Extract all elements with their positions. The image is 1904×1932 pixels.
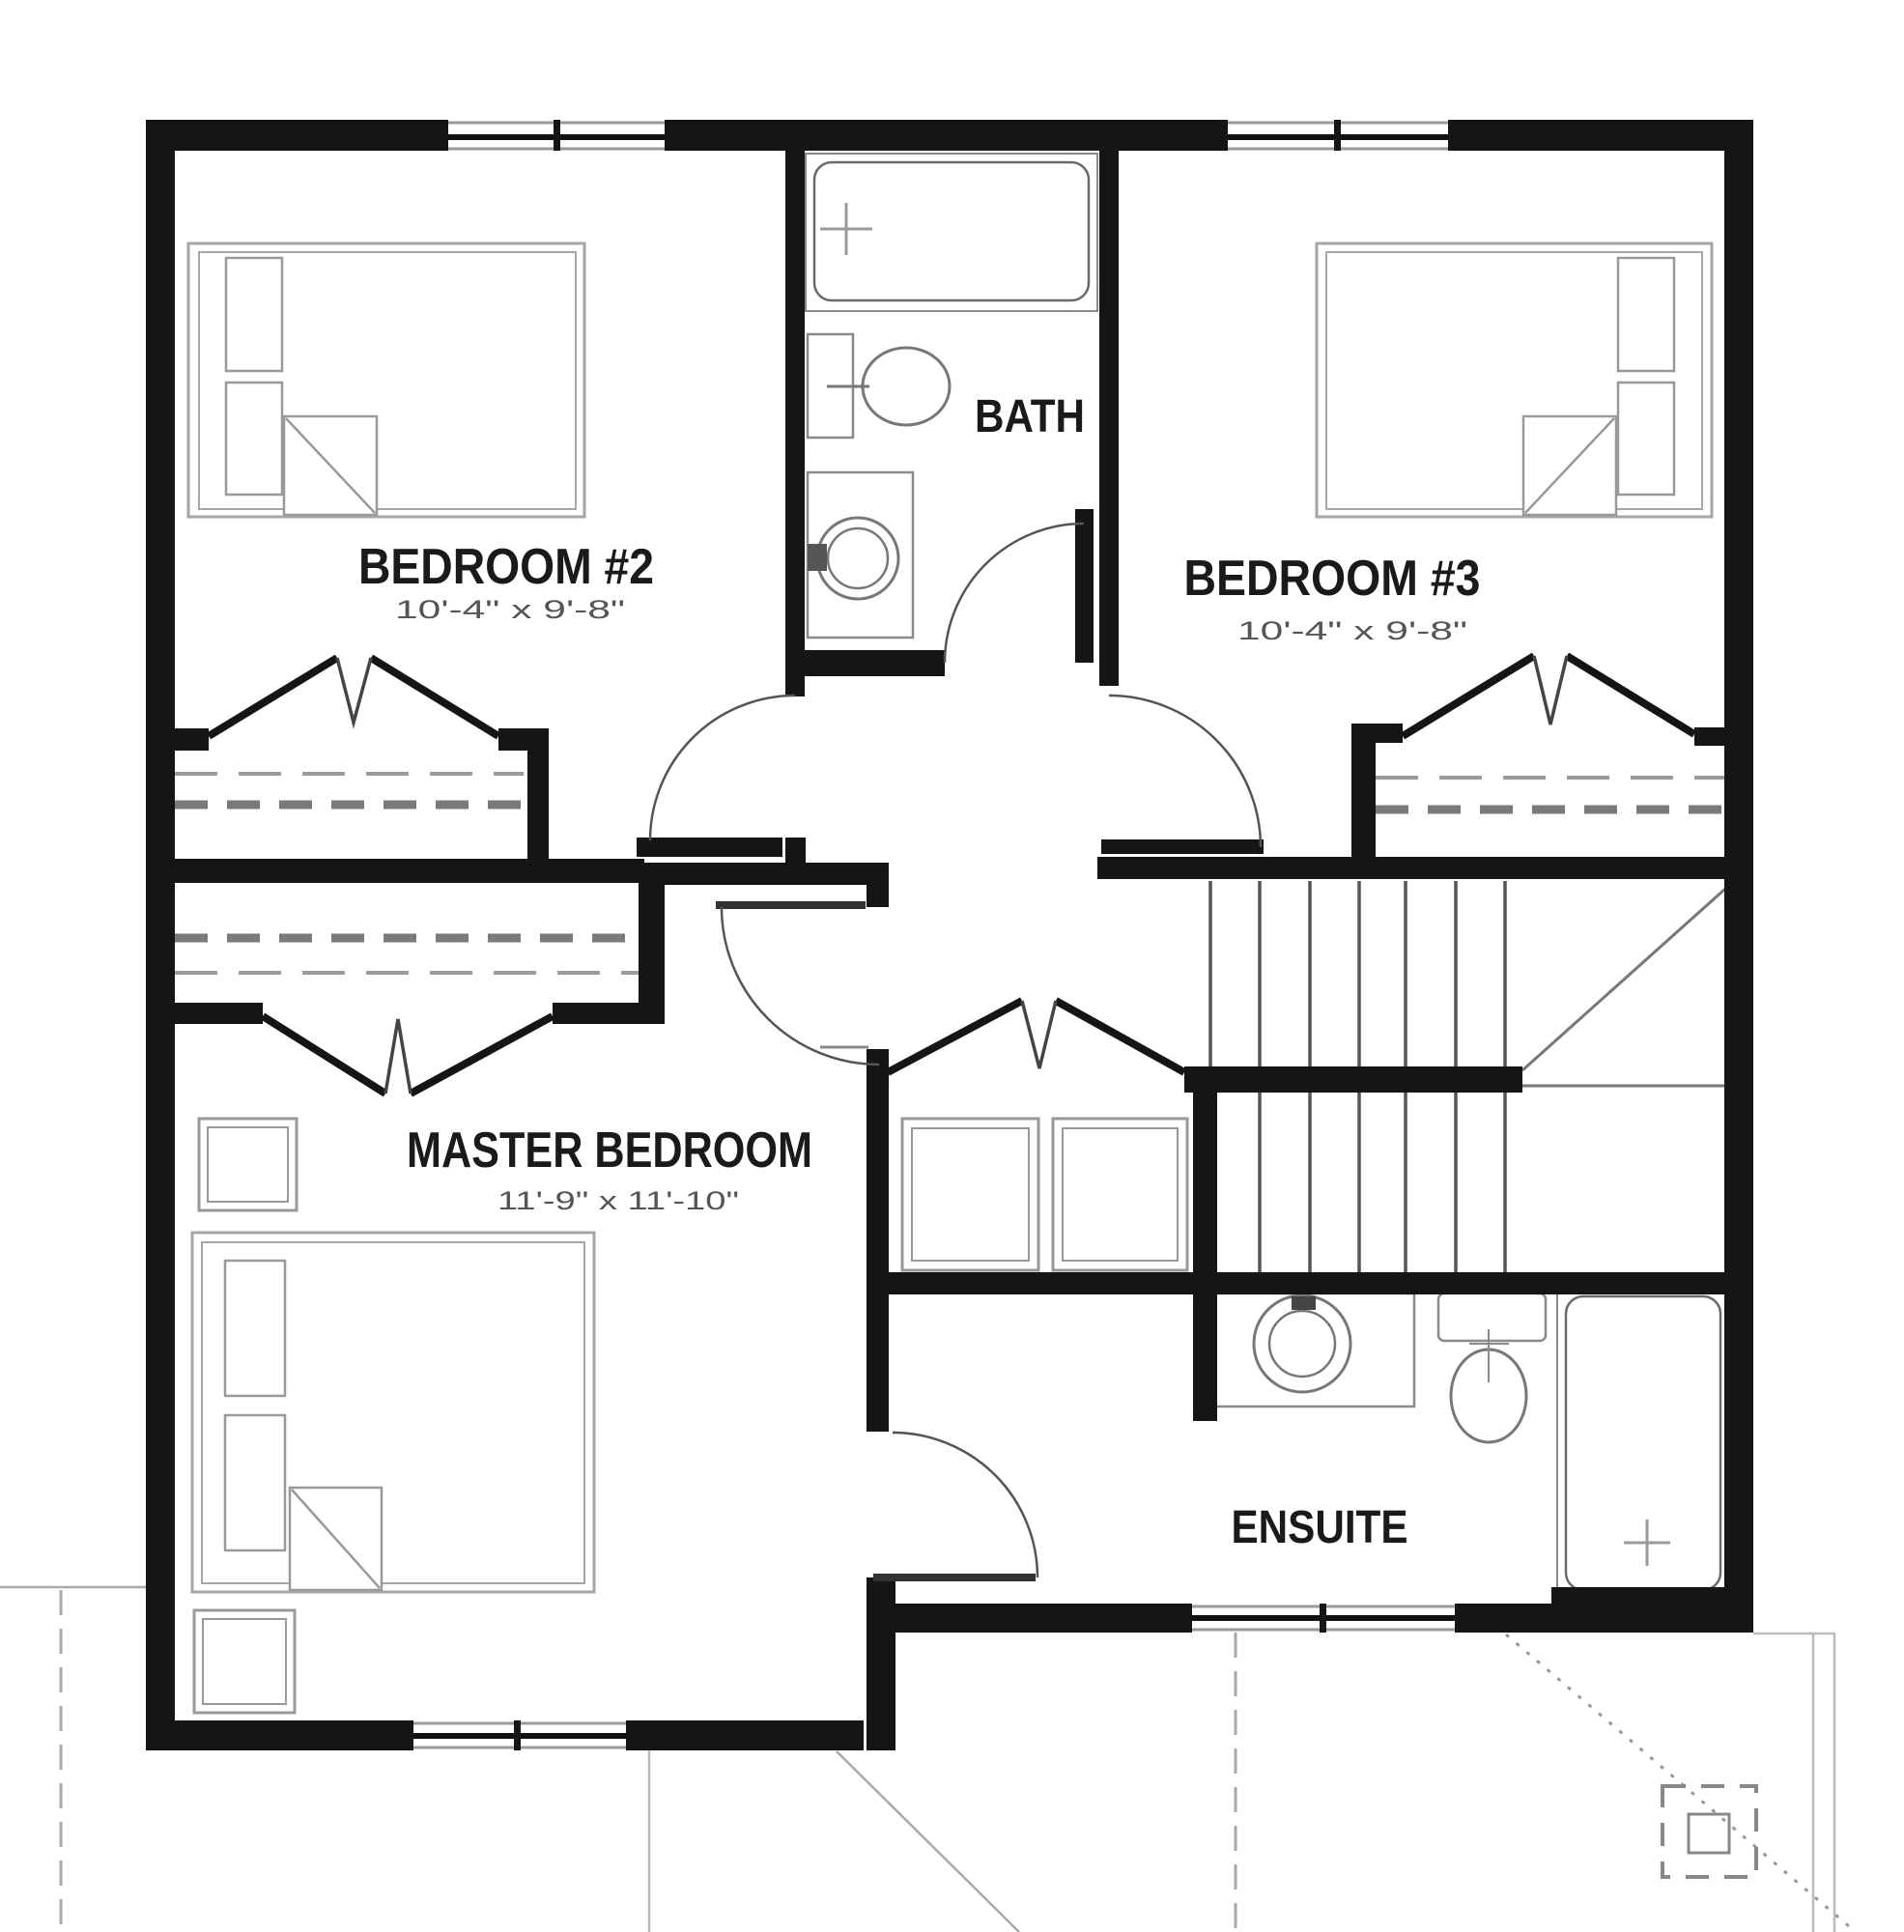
svg-text:10'-4" x 9'-8": 10'-4" x 9'-8" [1237,616,1467,645]
svg-text:ENSUITE: ENSUITE [1232,1502,1408,1553]
svg-text:10'-4" x 9'-8": 10'-4" x 9'-8" [395,595,625,624]
svg-text:11'-9" x 11'-10": 11'-9" x 11'-10" [497,1186,739,1215]
svg-text:BEDROOM #3: BEDROOM #3 [1184,551,1481,607]
svg-text:BATH: BATH [975,391,1085,442]
svg-text:MASTER BEDROOM: MASTER BEDROOM [407,1122,812,1179]
svg-text:BEDROOM #2: BEDROOM #2 [358,539,654,595]
